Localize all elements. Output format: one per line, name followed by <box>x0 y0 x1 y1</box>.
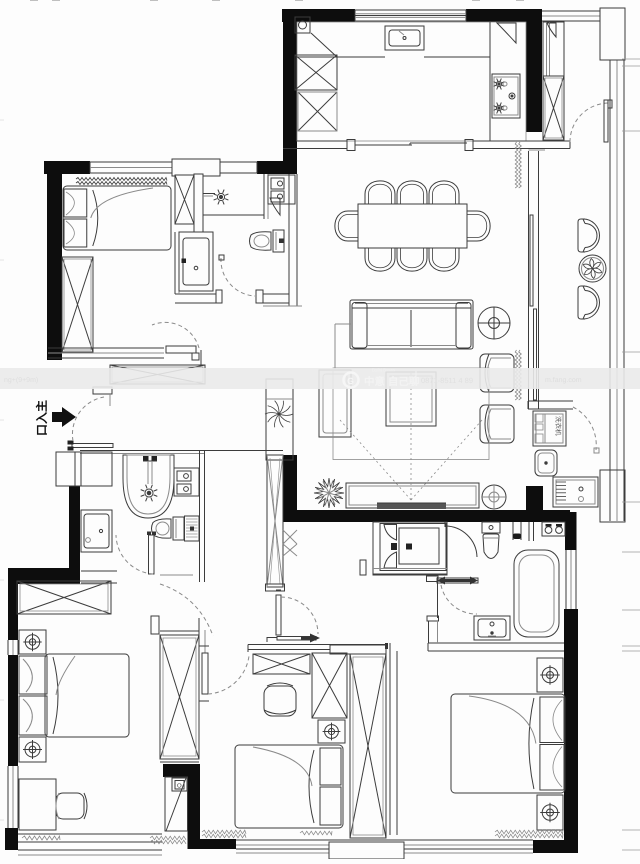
svg-text:G: G <box>347 376 354 386</box>
svg-text:O: O <box>177 783 182 790</box>
svg-text:Dslhi Bssss: Dslhi Bssss <box>372 368 396 373</box>
svg-text:0871-8511 4 89: 0871-8511 4 89 <box>421 376 473 385</box>
svg-text:m.fang.com: m.fang.com <box>545 376 582 384</box>
svg-text:洗衣机: 洗衣机 <box>554 416 562 436</box>
svg-text:中意 自己聊: 中意 自己聊 <box>364 375 419 388</box>
svg-text:ng+(9+9m): ng+(9+9m) <box>4 376 38 384</box>
svg-text:口入主: 口入主 <box>35 400 49 436</box>
